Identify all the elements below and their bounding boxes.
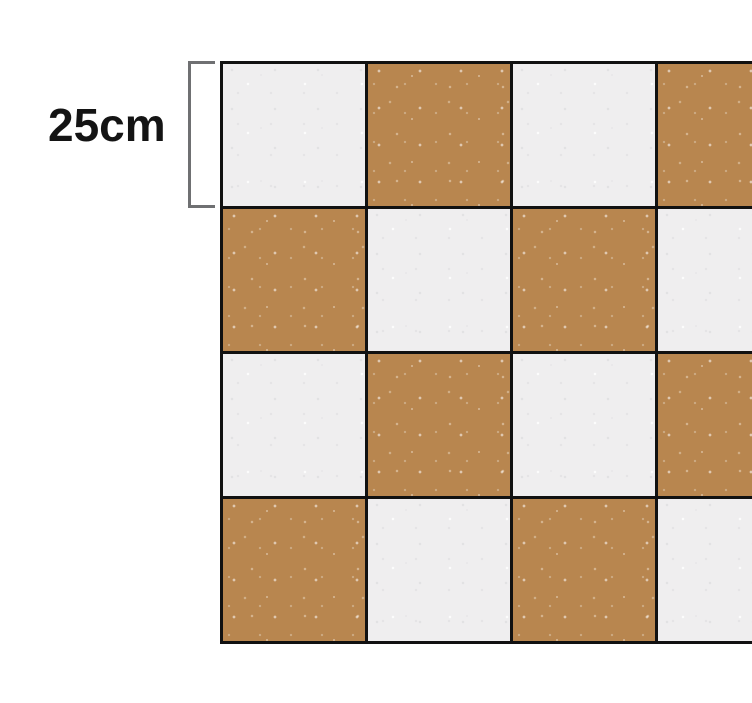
tile-grid — [220, 61, 752, 644]
tile-light — [368, 209, 510, 351]
tile-tan — [658, 64, 752, 206]
tile-light — [658, 209, 752, 351]
tile-tan — [513, 499, 655, 641]
tile-diagram-canvas: 25cm — [0, 0, 752, 703]
dimension-bracket — [188, 61, 215, 208]
tile-light — [513, 354, 655, 496]
tile-tan — [658, 354, 752, 496]
dimension-label: 25cm — [48, 102, 166, 148]
tile-tan — [223, 209, 365, 351]
tile-light — [368, 499, 510, 641]
tile-light — [223, 354, 365, 496]
tile-tan — [368, 354, 510, 496]
tile-tan — [513, 209, 655, 351]
tile-light — [658, 499, 752, 641]
tile-tan — [223, 499, 365, 641]
tile-light — [513, 64, 655, 206]
tile-tan — [368, 64, 510, 206]
tile-light — [223, 64, 365, 206]
